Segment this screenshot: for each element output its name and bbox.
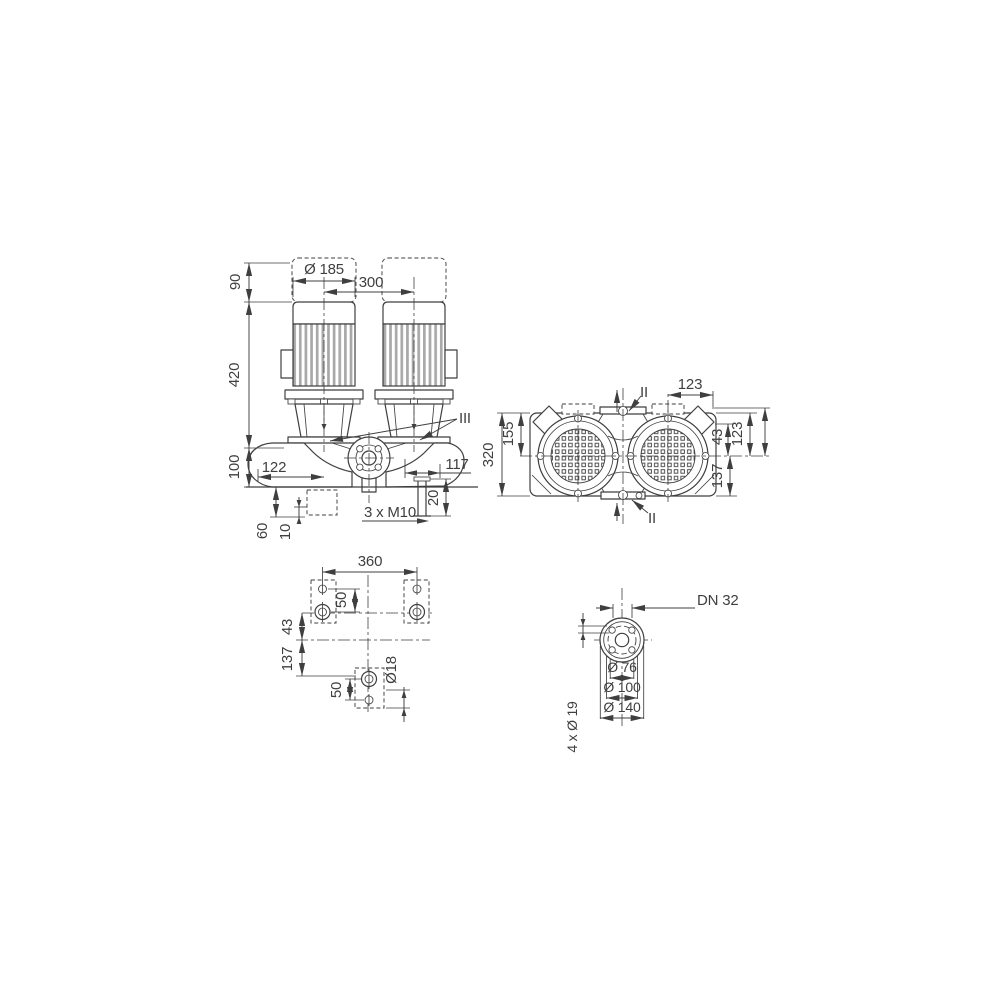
label-II-top: II xyxy=(640,384,648,401)
dim-dia-18: Ø18 xyxy=(383,656,400,684)
flange-detail-view: DN 32 4 x Ø 19 Ø 76 Ø 100 Ø 140 xyxy=(564,588,739,753)
dim-50-upper: 50 xyxy=(333,592,350,608)
bore xyxy=(615,633,628,646)
dim-137-top-view: 137 xyxy=(709,464,726,488)
motor-right xyxy=(375,258,457,452)
dim-117: 117 xyxy=(445,456,468,473)
dim-10: 10 xyxy=(277,524,294,540)
dim-155: 155 xyxy=(500,422,517,446)
dim-123-top: 123 xyxy=(678,376,702,393)
dim-43-top-view: 43 xyxy=(709,429,726,445)
dim-320: 320 xyxy=(480,443,497,467)
dim-dia-185: Ø 185 xyxy=(304,261,344,278)
dim-122: 122 xyxy=(262,459,286,476)
dim-20: 20 xyxy=(425,490,442,506)
mounting-pad-bottom xyxy=(355,668,384,708)
top-view: II II 320 155 123 43 123 1 xyxy=(480,376,770,527)
label-III: III xyxy=(459,410,471,427)
label-3xM10: 3 x M10 xyxy=(364,504,416,521)
foundation-plan-view: 360 50 43 137 50 Ø18 xyxy=(279,553,432,722)
label-DN32: DN 32 xyxy=(697,592,739,609)
dim-123-right: 123 xyxy=(729,422,746,446)
dim-50-lower: 50 xyxy=(328,682,345,698)
technical-drawing-page: 90 420 100 Ø 185 300 122 117 20 3 x M10 xyxy=(0,0,1000,1000)
label-II-bottom: II xyxy=(648,510,656,527)
terminal-box-left xyxy=(281,350,293,378)
dim-dia-100: Ø 100 xyxy=(603,679,641,695)
clamp-eyelet xyxy=(636,493,642,499)
dim-100: 100 xyxy=(226,455,243,479)
mounting-pad-top-right xyxy=(404,580,429,623)
dim-420: 420 xyxy=(226,363,243,387)
dim-43-plan: 43 xyxy=(279,619,296,635)
terminal-box-right xyxy=(445,350,457,378)
flange-dimensions: DN 32 4 x Ø 19 Ø 76 Ø 100 Ø 140 xyxy=(564,592,739,753)
dim-137-plan: 137 xyxy=(279,647,296,671)
pump-dimension-drawing: 90 420 100 Ø 185 300 122 117 20 3 x M10 xyxy=(0,0,1000,1000)
foot-pad-dashed xyxy=(307,490,337,515)
front-view: 90 420 100 Ø 185 300 122 117 20 3 x M10 xyxy=(226,258,478,540)
plan-dimensions: 360 50 43 137 50 Ø18 xyxy=(279,553,417,722)
dim-360: 360 xyxy=(358,553,382,570)
dim-dia-76: Ø 76 xyxy=(607,659,637,675)
dim-dia-140: Ø 140 xyxy=(603,699,641,715)
dim-300: 300 xyxy=(359,274,383,291)
flange-face xyxy=(600,618,644,662)
dim-60: 60 xyxy=(254,523,271,539)
dim-90: 90 xyxy=(227,274,244,290)
dim-4x-dia-19: 4 x Ø 19 xyxy=(564,701,580,753)
